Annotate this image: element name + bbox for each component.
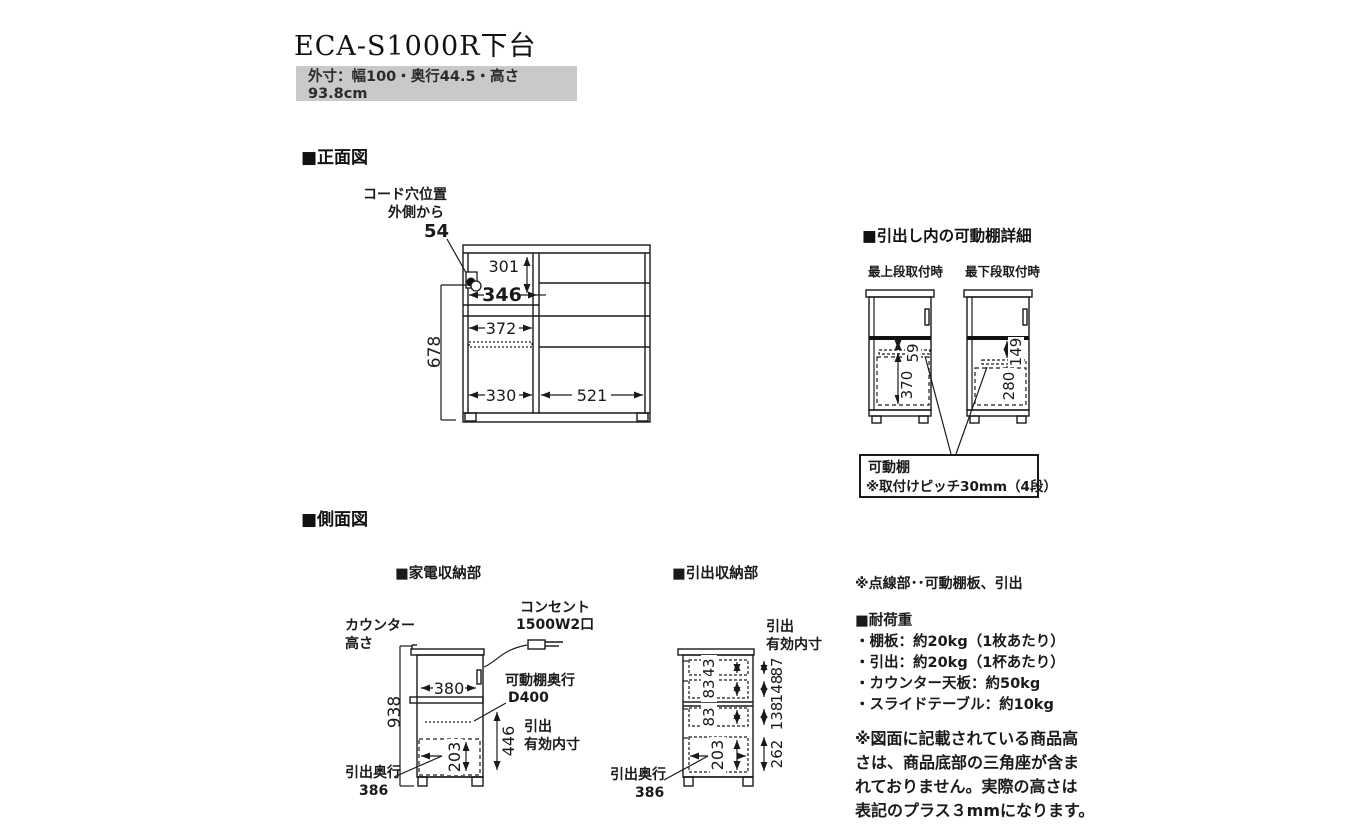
dim-330: 330 xyxy=(469,386,532,405)
dim-43: 43 xyxy=(700,658,718,677)
counter-height-label-2: 高さ xyxy=(345,635,373,652)
height-note-line: れておりません。実際の高さは xyxy=(855,775,1105,799)
caption-top-position: 最上段取付時 xyxy=(868,264,944,279)
dim-148: 148 xyxy=(768,675,786,704)
svg-text:330: 330 xyxy=(486,386,517,405)
svg-text:54: 54 xyxy=(424,221,449,242)
drawer-depth-leader-appliance xyxy=(394,756,442,777)
load-capacity-item: ・カウンター天板：約50kg xyxy=(855,674,1065,695)
load-capacity-item: ・棚板：約20kg（1枚あたり） xyxy=(855,632,1065,653)
counter-height-label-1: カウンター xyxy=(345,618,415,634)
dotted-line-note: ※点線部･･可動棚板、引出 xyxy=(855,573,1023,593)
shelf-note-line2: ※取付けピッチ30mm（4段） xyxy=(866,478,1057,495)
dim-203-drawer: 203 xyxy=(708,740,727,771)
height-note-line: ※図面に記載されている商品高 xyxy=(855,727,1105,751)
front-view-drawing: コード穴位置 外側から 54 xyxy=(340,175,670,435)
svg-text:301: 301 xyxy=(488,257,519,276)
height-note-line: さは、商品底部の三角座が含ま xyxy=(855,751,1105,775)
drawer-inner-label-2: 有効内寸 xyxy=(766,636,822,653)
drawer-depth-label-1: 引出奥行 xyxy=(345,764,401,781)
page-title: ECA-S1000R下台 xyxy=(294,24,537,63)
caption-bottom-position: 最下段取付時 xyxy=(965,264,1041,279)
drawer-depth-value: 386 xyxy=(359,783,388,799)
shelf-note-box: 可動棚 ※取付けピッチ30mm（4段） xyxy=(860,455,1057,497)
dim-521: 521 xyxy=(541,386,643,405)
drawer-right-dims: 87 148 138 262 xyxy=(764,657,786,771)
load-capacity-item: ・引出：約20kg（1杯あたり） xyxy=(855,653,1065,674)
dim-83-lower: 83 xyxy=(700,707,718,726)
svg-text:938: 938 xyxy=(385,696,405,728)
svg-text:372: 372 xyxy=(486,319,517,338)
svg-text:コード穴位置: コード穴位置 xyxy=(363,186,447,203)
shelf-note-line1: 可動棚 xyxy=(868,459,910,476)
outer-dimensions-banner: 外寸：幅100・奥行44.5・高さ93.8cm xyxy=(296,66,577,101)
drawer-depth-value-2: 386 xyxy=(635,785,664,801)
svg-text:346: 346 xyxy=(482,284,522,306)
inner-dim-label-2: 有効内寸 xyxy=(524,736,580,753)
dim-83-upper: 83 xyxy=(700,679,718,698)
inner-dim-label-1: 引出 xyxy=(524,718,552,735)
dim-370: 370 xyxy=(898,371,916,400)
outlet-label-2: 1500W2口 xyxy=(516,617,594,633)
appliance-side-view: カウンター 高さ コンセント 1500W2口 938 xyxy=(345,600,594,799)
plug-icon xyxy=(484,640,563,667)
shelf-depth-label-2: D400 xyxy=(508,690,549,706)
dim-446: 446 xyxy=(497,712,518,770)
dim-149: 149 xyxy=(1007,338,1025,367)
drawer-inner-label-1: 引出 xyxy=(766,618,794,635)
shelf-depth-label-1: 可動棚奥行 xyxy=(505,672,575,689)
svg-text:678: 678 xyxy=(425,336,445,368)
svg-text:外側から: 外側から xyxy=(388,204,444,221)
shelf-detail-header: ■引出し内の可動棚詳細 xyxy=(862,224,1032,246)
dim-262: 262 xyxy=(768,740,786,769)
dim-203-appliance: 203 xyxy=(445,739,466,775)
dim-380: 380 xyxy=(421,679,476,698)
svg-text:203: 203 xyxy=(445,742,464,773)
dim-59: 59 xyxy=(904,343,922,362)
load-capacity-block: ■耐荷重 ・棚板：約20kg（1枚あたり） ・引出：約20kg（1杯あたり） ・… xyxy=(855,611,1065,716)
appliance-section-header: ■家電収納部 xyxy=(395,564,482,582)
front-view-header: ■正面図 xyxy=(301,143,368,168)
diagram-page: ECA-S1000R下台 外寸：幅100・奥行44.5・高さ93.8cm ■正面… xyxy=(0,0,1360,840)
svg-text:521: 521 xyxy=(577,386,608,405)
dim-138: 138 xyxy=(768,702,786,731)
drawer-section-header: ■引出収納部 xyxy=(672,564,759,582)
outer-dimensions-text: 外寸：幅100・奥行44.5・高さ93.8cm xyxy=(296,65,577,102)
drawer-depth-label-2-1: 引出奥行 xyxy=(610,766,666,783)
dim-280: 280 xyxy=(1000,372,1018,401)
height-note-block: ※図面に記載されている商品高 さは、商品底部の三角座が含ま れておりません。実際… xyxy=(855,727,1105,823)
svg-text:380: 380 xyxy=(434,679,465,698)
height-note-line: 表記のプラス３mmになります。 xyxy=(855,799,1105,823)
side-view-header: ■側面図 xyxy=(301,505,368,530)
shelf-detail-drawing: 最上段取付時 最下段取付時 59 370 xyxy=(855,255,1055,500)
cord-hole xyxy=(466,272,481,291)
dim-87: 87 xyxy=(768,657,786,676)
cord-hole-label: コード穴位置 外側から 54 xyxy=(363,186,469,278)
load-capacity-header: ■耐荷重 xyxy=(855,611,1065,632)
mini-cabinet-top-position: 59 370 xyxy=(866,290,934,423)
svg-text:446: 446 xyxy=(499,726,518,757)
outlet-label-1: コンセント xyxy=(520,600,590,616)
drawer-side-view: 引出 有効内寸 43 83 83 203 xyxy=(610,618,822,801)
side-view-drawing: ■家電収納部 ■引出収納部 カウンター 高さ コンセント 1500W2口 938 xyxy=(340,560,840,810)
dim-372: 372 xyxy=(469,319,532,338)
load-capacity-item: ・スライドテーブル：約10kg xyxy=(855,695,1065,716)
